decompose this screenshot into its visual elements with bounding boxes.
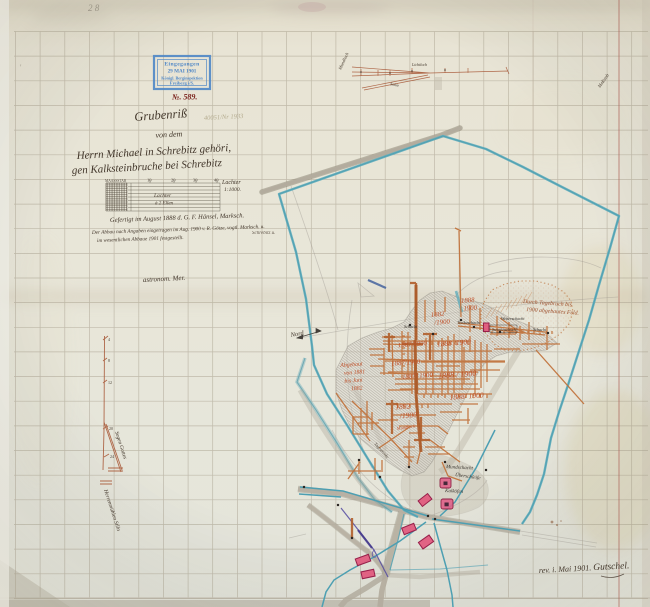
svg-text:Eingegangen: Eingegangen: [164, 62, 200, 68]
svg-text:40: 40: [214, 178, 219, 183]
svg-text:29 MAI 1901: 29 MAI 1901: [168, 69, 197, 75]
svg-text:Steinbruchsch.: Steinbruchsch.: [492, 327, 517, 332]
svg-text:1:1000.: 1:1000.: [224, 187, 241, 193]
svg-text:Schacht: Schacht: [533, 327, 547, 332]
svg-text:Wetterschacht: Wetterschacht: [501, 316, 525, 321]
svg-text:Schrebitz u.: Schrebitz u.: [252, 231, 275, 236]
svg-text:Freiberg i/S.: Freiberg i/S.: [170, 81, 194, 86]
svg-text:4: 4: [108, 337, 110, 342]
svg-text:à 2 Ellen: à 2 Ellen: [155, 202, 174, 207]
svg-text:10: 10: [147, 178, 152, 183]
svg-text:Schacht: Schacht: [404, 324, 418, 329]
svg-text:1900: 1900: [463, 305, 478, 313]
svg-text:Lichtloch: Lichtloch: [411, 62, 427, 67]
svg-text:von dem: von dem: [155, 129, 183, 139]
svg-text:20: 20: [109, 426, 113, 431]
svg-text:20: 20: [171, 178, 176, 183]
svg-text:Treibeschacht: Treibeschacht: [457, 320, 481, 325]
svg-text:Kalköfen: Kalköfen: [444, 489, 464, 495]
svg-text:2 8: 2 8: [88, 3, 100, 13]
svg-text:1882: 1882: [351, 386, 363, 393]
svg-text:12: 12: [108, 380, 112, 385]
svg-text:/1900: /1900: [399, 410, 418, 420]
svg-text:№. 589.: №. 589.: [172, 93, 197, 102]
svg-text:24: 24: [110, 454, 114, 459]
svg-text:30: 30: [193, 178, 198, 183]
svg-text:MAASSSTAB: MAASSSTAB: [105, 179, 127, 183]
svg-text:1888: 1888: [461, 297, 476, 305]
svg-text:/1900: /1900: [433, 318, 451, 326]
svg-text:Lachter: Lachter: [221, 180, 241, 186]
svg-text:Lachter: Lachter: [153, 193, 172, 199]
svg-text:8: 8: [108, 358, 110, 363]
svg-text:1882: 1882: [431, 311, 446, 319]
